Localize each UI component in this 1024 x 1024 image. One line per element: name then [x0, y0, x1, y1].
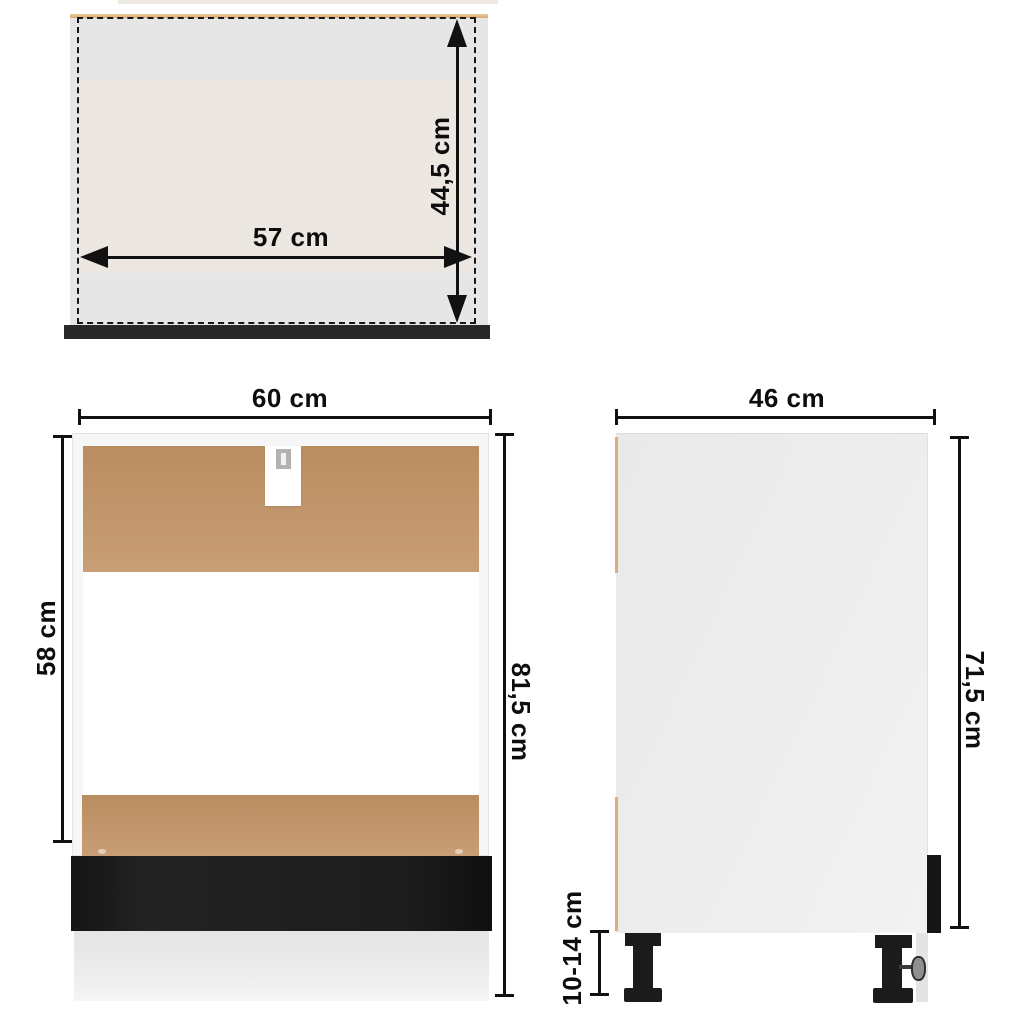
- product-dimension-diagram: 57 cm 44,5 cm 60 cm: [0, 0, 1024, 1024]
- back-edge-tan-upper: [615, 437, 618, 573]
- leg-foot: [873, 988, 913, 1003]
- dimension-tick: [53, 435, 72, 438]
- front-panel-black: [71, 856, 492, 931]
- dimension-line: [598, 931, 601, 996]
- leg-stem: [882, 948, 902, 990]
- leg-flange: [625, 933, 661, 946]
- leveling-screw-knob: [911, 956, 926, 981]
- dimension-tick: [53, 840, 72, 843]
- dimension-tick: [489, 409, 492, 425]
- back-edge-tan-lower: [615, 797, 618, 931]
- back-panel-lower: [82, 795, 479, 856]
- screw-hole: [455, 849, 463, 854]
- top-view-front-edge-bar: [64, 325, 490, 339]
- dimension-label-side-depth: 46 cm: [749, 385, 825, 411]
- dimension-tick: [933, 409, 936, 425]
- arrowhead-down-icon: [447, 295, 467, 323]
- dimension-label-leg-height: 10-14 cm: [559, 890, 585, 1005]
- dimension-label-total-height: 81,5 cm: [508, 663, 534, 762]
- dimension-tick: [950, 926, 969, 929]
- dimension-line: [456, 38, 459, 304]
- leg-stem: [633, 946, 653, 990]
- dimension-label-top-depth: 44,5 cm: [427, 117, 453, 216]
- leg-foot: [624, 988, 662, 1002]
- arrowhead-up-icon: [447, 19, 467, 47]
- dimension-tick: [950, 436, 969, 439]
- dimension-line: [61, 435, 64, 843]
- dimension-tick: [495, 994, 514, 997]
- screw-hole: [98, 849, 106, 854]
- dimension-tick: [615, 409, 618, 425]
- top-view-dashed-outline: [77, 17, 476, 324]
- photo-edge-artifact: [118, 0, 498, 4]
- dimension-label-opening-height: 58 cm: [33, 600, 59, 676]
- front-panel-edge: [927, 855, 941, 933]
- arrowhead-left-icon: [80, 246, 108, 268]
- dimension-label-front-width: 60 cm: [252, 385, 328, 411]
- leg-flange: [875, 935, 912, 948]
- side-panel: [616, 433, 928, 933]
- dimension-label-side-height: 71,5 cm: [962, 651, 988, 750]
- dimension-tick: [78, 409, 81, 425]
- plinth: [74, 931, 489, 1001]
- dimension-tick: [590, 930, 609, 933]
- dimension-label-top-width: 57 cm: [253, 224, 329, 250]
- oven-opening: [83, 572, 479, 795]
- dimension-line: [96, 256, 460, 259]
- dimension-line: [78, 416, 492, 419]
- dimension-line: [615, 416, 936, 419]
- dimension-tick: [590, 993, 609, 996]
- dimension-tick: [495, 433, 514, 436]
- keyhole-slot: [281, 453, 286, 465]
